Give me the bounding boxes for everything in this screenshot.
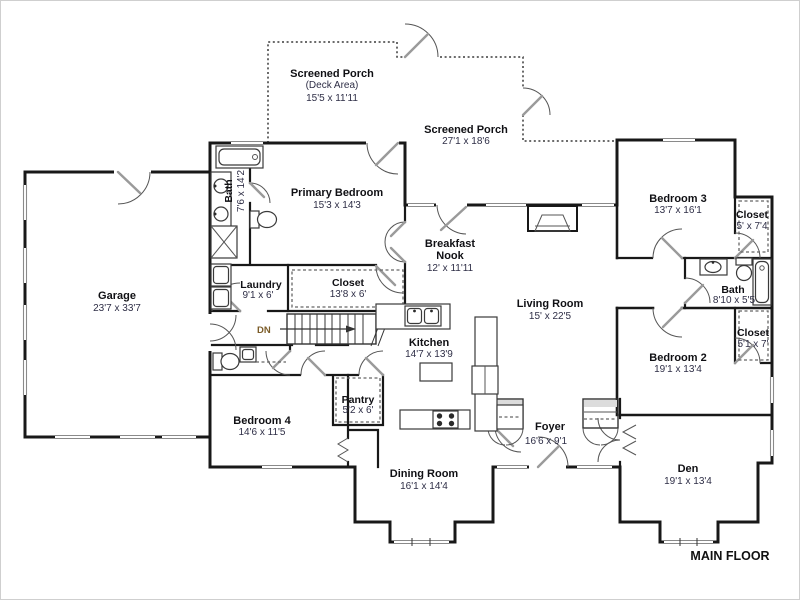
washer-dryer (211, 264, 231, 309)
room-label-bedroom4: Bedroom 4 14'6 x 11'5 (233, 415, 291, 438)
svg-text:7'6 x 14'2: 7'6 x 14'2 (236, 169, 247, 212)
powder-sink (240, 347, 256, 362)
svg-text:Bedroom 2: Bedroom 2 (649, 352, 706, 364)
svg-text:Bedroom 4: Bedroom 4 (233, 415, 291, 427)
svg-text:Garage: Garage (98, 290, 136, 302)
svg-text:Closet: Closet (736, 209, 769, 221)
hall-bath-toilet (736, 258, 752, 281)
powder-toilet (213, 353, 239, 370)
kitchen-island (420, 363, 452, 381)
svg-text:27'1 x 18'6: 27'1 x 18'6 (442, 136, 490, 147)
svg-text:23'7 x 33'7: 23'7 x 33'7 (93, 303, 141, 314)
svg-text:19'1 x 13'4: 19'1 x 13'4 (664, 476, 712, 487)
svg-text:13'7 x 16'1: 13'7 x 16'1 (654, 205, 702, 216)
svg-text:16'6 x 9'1: 16'6 x 9'1 (525, 436, 568, 447)
kitchen-sink (405, 306, 441, 326)
svg-text:Bath: Bath (223, 179, 235, 202)
bar-counter (497, 405, 523, 429)
svg-text:Breakfast: Breakfast (425, 238, 475, 250)
toilet (250, 211, 277, 228)
svg-text:Nook: Nook (436, 250, 464, 262)
svg-text:14'6 x 11'5: 14'6 x 11'5 (238, 427, 285, 438)
svg-text:Screened Porch: Screened Porch (424, 124, 508, 136)
room-label-bedroom3-closet: Closet 5' x 7'4 (736, 209, 769, 232)
svg-text:15'5 x 11'11: 15'5 x 11'11 (306, 93, 358, 104)
svg-text:19'1 x 13'4: 19'1 x 13'4 (654, 364, 702, 375)
hall-bathtub (753, 259, 771, 305)
svg-text:5' x 7'4: 5' x 7'4 (736, 221, 767, 232)
floor-plan-page: DN (0, 0, 800, 600)
room-label-bedroom3: Bedroom 3 13'7 x 16'1 (649, 193, 706, 216)
room-label-pantry: Pantry 5'2 x 6' (342, 394, 375, 416)
svg-text:Screened Porch: Screened Porch (290, 68, 374, 80)
svg-text:Dining Room: Dining Room (390, 468, 459, 480)
svg-text:12' x 11'11: 12' x 11'11 (427, 263, 474, 274)
svg-text:13'8 x 6': 13'8 x 6' (330, 289, 367, 300)
svg-text:Closet: Closet (332, 277, 365, 289)
svg-text:Closet: Closet (737, 327, 770, 339)
room-label-primary-closet: Closet 13'8 x 6' (330, 277, 367, 300)
svg-text:Foyer: Foyer (535, 421, 566, 433)
svg-text:Kitchen: Kitchen (409, 337, 450, 349)
refrigerator (472, 366, 498, 394)
room-label-bedroom2-closet: Closet 5'1 x 7' (737, 327, 770, 350)
svg-text:9'1 x 6': 9'1 x 6' (242, 290, 273, 301)
room-label-bedroom2: Bedroom 2 19'1 x 13'4 (649, 352, 706, 375)
svg-text:14'7 x 13'9: 14'7 x 13'9 (405, 349, 453, 360)
room-label-kitchen: Kitchen 14'7 x 13'9 (405, 337, 453, 360)
svg-text:16'1 x 14'4: 16'1 x 14'4 (400, 481, 448, 492)
stairs-down-label: DN (257, 325, 271, 336)
svg-text:15' x 22'5: 15' x 22'5 (529, 311, 572, 322)
shower (211, 226, 237, 258)
hall-bath-sink (700, 259, 727, 275)
svg-text:(Deck Area): (Deck Area) (306, 80, 359, 91)
floor-title: MAIN FLOOR (690, 549, 769, 563)
stove (433, 411, 458, 428)
svg-text:Living Room: Living Room (517, 298, 584, 310)
bathtub (216, 146, 263, 168)
svg-text:8'10 x 5'5: 8'10 x 5'5 (713, 295, 756, 306)
svg-text:Bedroom 3: Bedroom 3 (649, 193, 706, 205)
svg-text:Primary Bedroom: Primary Bedroom (291, 187, 384, 199)
svg-text:Den: Den (678, 463, 699, 475)
fireplace (528, 206, 577, 231)
svg-text:5'1 x 7': 5'1 x 7' (737, 339, 768, 350)
floor-plan-drawing: DN (0, 0, 800, 600)
svg-text:15'3 x 14'3: 15'3 x 14'3 (313, 200, 361, 211)
svg-text:5'2 x 6': 5'2 x 6' (342, 405, 373, 416)
